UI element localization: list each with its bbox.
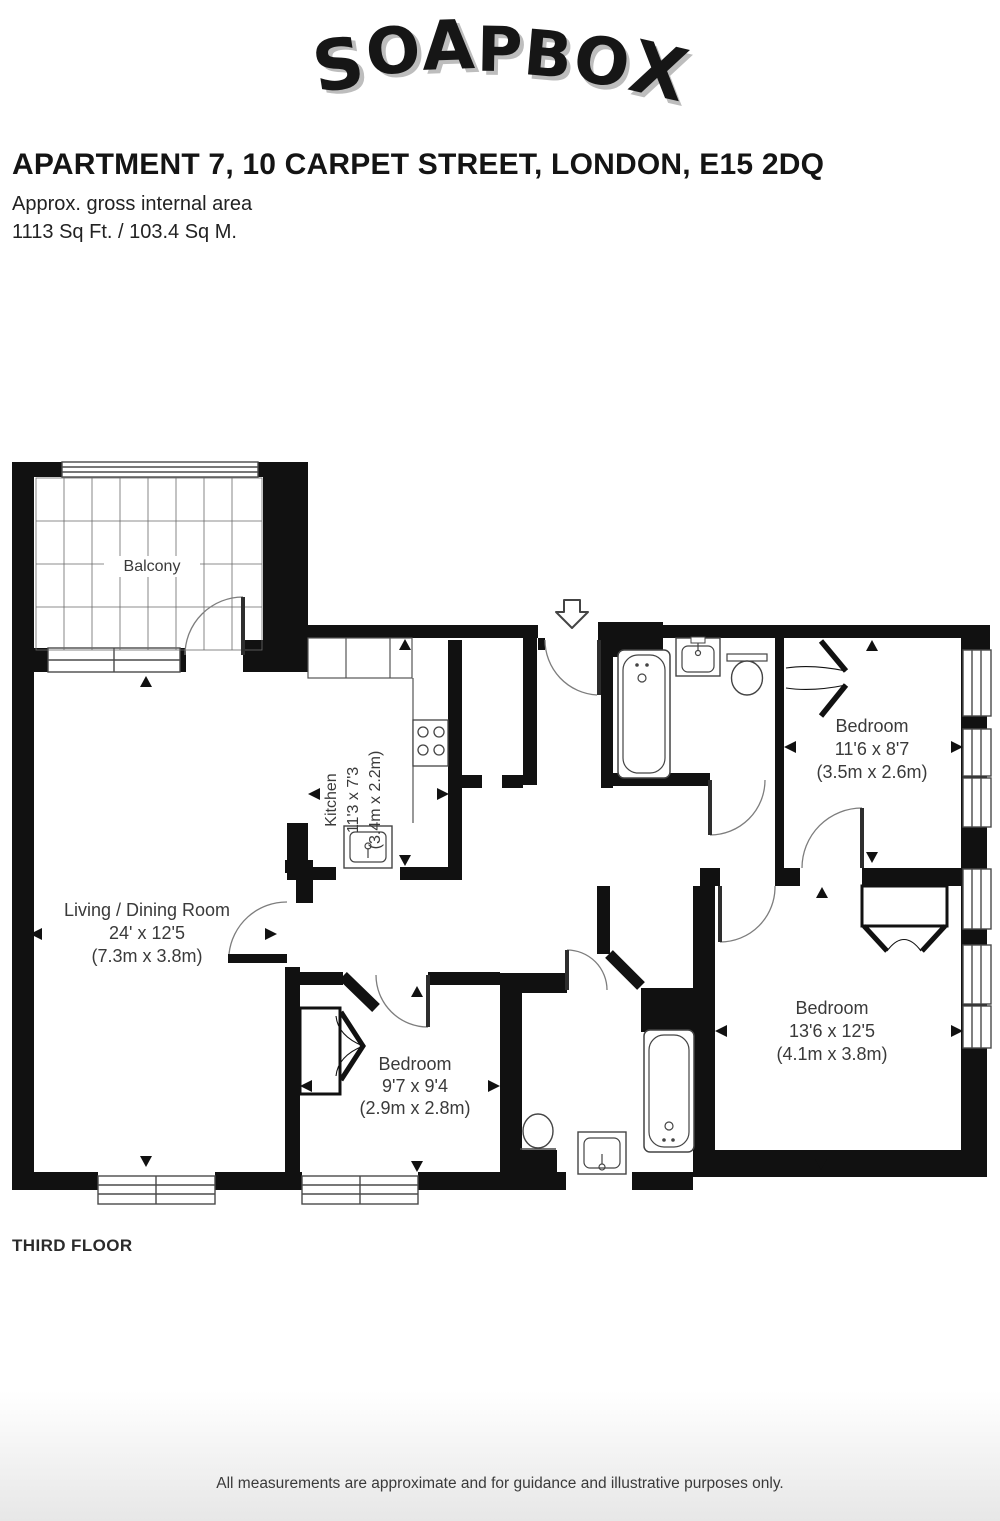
living-room-name: Living / Dining Room: [64, 900, 230, 920]
wardrobe-bedroom3: [862, 886, 947, 951]
hob-icon: [413, 720, 448, 766]
floorplan-drawing: Balcony Kitchen 11'3 x 7'3 (3.4m x 2.2m)…: [0, 440, 1000, 1230]
bedroom3-dims-metric: (4.1m x 3.8m): [776, 1044, 887, 1064]
bedroom1-name: Bedroom: [835, 716, 908, 736]
kitchen-name: Kitchen: [323, 773, 340, 826]
kitchen-dims-imperial: 11'3 x 7'3: [345, 767, 362, 833]
sink-1-icon: [676, 637, 720, 676]
floor-label: THIRD FLOOR: [12, 1236, 133, 1256]
disclaimer-text: All measurements are approximate and for…: [0, 1475, 1000, 1493]
bathtub-2-icon: [644, 1030, 694, 1152]
bathtub-1-icon: [618, 650, 670, 778]
page-title: APARTMENT 7, 10 CARPET STREET, LONDON, E…: [12, 148, 824, 182]
bedroom2-name: Bedroom: [378, 1054, 451, 1074]
bedroom2-dims-imperial: 9'7 x 9'4: [382, 1076, 448, 1096]
toilet-2-icon: [520, 1114, 556, 1149]
entry-arrow-icon: [556, 600, 588, 628]
bedroom2-dims-metric: (2.9m x 2.8m): [359, 1098, 470, 1118]
bedroom3-name: Bedroom: [795, 998, 868, 1018]
sink-2-icon: [566, 1132, 632, 1198]
bedroom3-dims-imperial: 13'6 x 12'5: [789, 1021, 875, 1041]
bedroom1-dims-imperial: 11'6 x 8'7: [835, 739, 910, 759]
area-label: Approx. gross internal area: [12, 193, 252, 216]
toilet-1-icon: [727, 654, 767, 695]
living-room-dims-imperial: 24' x 12'5: [109, 923, 185, 943]
balcony-label: Balcony: [124, 558, 181, 575]
footer: All measurements are approximate and for…: [0, 1391, 1000, 1521]
wardrobe-bedroom1: [786, 641, 846, 716]
bedroom1-dims-metric: (3.5m x 2.6m): [816, 762, 927, 782]
area-value: 1113 Sq Ft. / 103.4 Sq M.: [12, 221, 237, 244]
soapbox-logo: SOAPBOX: [0, 10, 1000, 120]
wardrobe-bedroom2: [300, 1008, 363, 1094]
living-room-dims-metric: (7.3m x 3.8m): [91, 946, 202, 966]
kitchen-dims-metric: (3.4m x 2.2m): [367, 751, 384, 850]
